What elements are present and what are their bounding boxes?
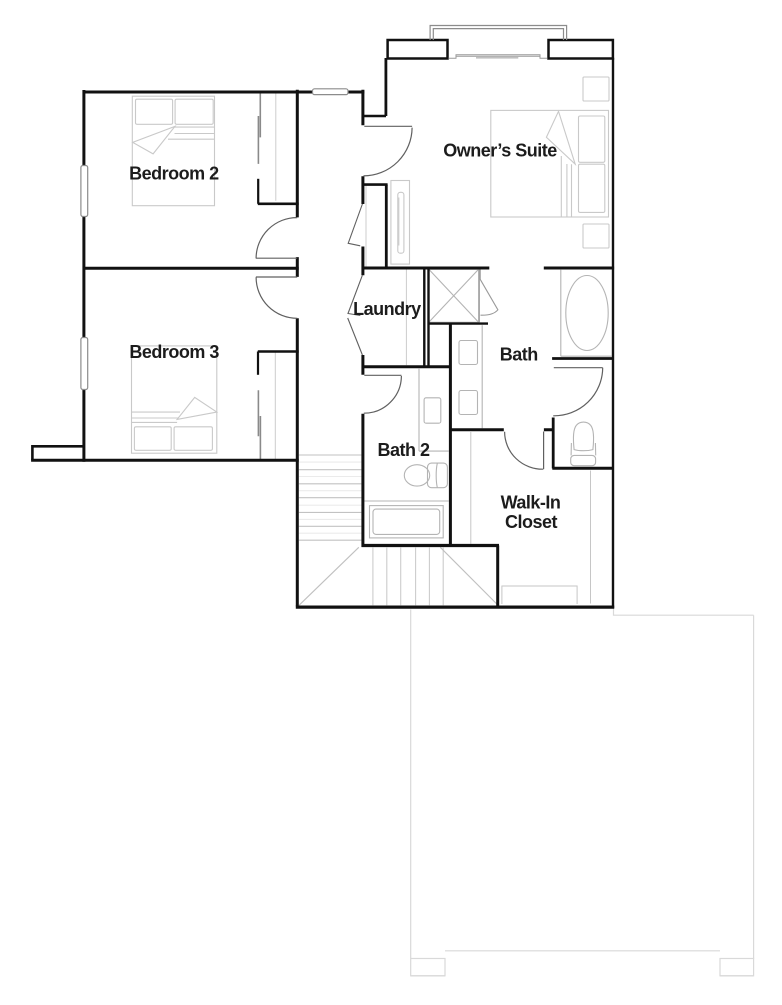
svg-text:Bath 2: Bath 2 bbox=[377, 440, 430, 460]
svg-text:Walk-In: Walk-In bbox=[501, 493, 561, 513]
svg-text:Closet: Closet bbox=[505, 512, 558, 532]
svg-text:Bath: Bath bbox=[500, 345, 538, 365]
svg-text:Bedroom 2: Bedroom 2 bbox=[129, 164, 219, 184]
svg-text:Owner’s Suite: Owner’s Suite bbox=[443, 141, 557, 161]
svg-text:Laundry: Laundry bbox=[353, 299, 421, 319]
svg-text:Bedroom 3: Bedroom 3 bbox=[129, 342, 219, 362]
